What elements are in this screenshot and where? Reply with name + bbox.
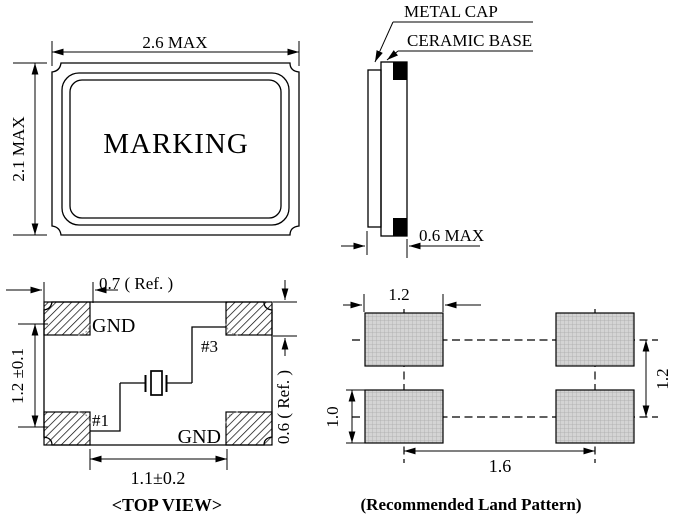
pin1-label: #1 bbox=[92, 411, 109, 430]
pad-width-dimension: 1.2 bbox=[343, 285, 481, 312]
front-view: 2.6 MAX 2.1 MAX MARKING bbox=[9, 33, 299, 235]
row-pitch-dim-label: 1.2 bbox=[653, 368, 672, 389]
pin3-label: #3 bbox=[201, 337, 218, 356]
side-view: METAL CAP CERAMIC BASE 0.6 MAX bbox=[341, 2, 533, 258]
horizontal-gap-dim-label: 1.1±0.2 bbox=[131, 468, 186, 488]
ceramic-base-label: CERAMIC BASE bbox=[407, 31, 532, 50]
land-pad-bottom-right bbox=[556, 390, 634, 443]
pad-height-dimension-land: 1.0 bbox=[323, 390, 367, 443]
horizontal-gap-dimension: 1.1±0.2 bbox=[90, 449, 227, 488]
thickness-dimension: 0.6 MAX bbox=[341, 226, 484, 258]
pad-gnd-top-left bbox=[44, 302, 90, 335]
front-height-dim-label: 2.1 MAX bbox=[9, 116, 28, 181]
gnd-label-bottom: GND bbox=[178, 426, 221, 448]
land-pad-top-right bbox=[556, 313, 634, 366]
ceramic-base-shape bbox=[381, 62, 407, 236]
marking-label: MARKING bbox=[103, 128, 249, 160]
column-pitch-dim-label: 1.6 bbox=[489, 456, 512, 476]
vertical-pitch-dimension: 1.2 ±0.1 bbox=[8, 324, 48, 427]
row-pitch-dimension: 1.2 bbox=[646, 340, 672, 417]
land-pad-top-left bbox=[365, 313, 443, 366]
crystal-element bbox=[151, 371, 162, 395]
gnd-label-top: GND bbox=[92, 315, 135, 337]
pad-width-dim-label: 1.2 bbox=[388, 285, 409, 304]
top-view: GND GND #3 #1 0.7 ( Ref. ) 1.2 ±0.1 0.6 … bbox=[6, 274, 297, 515]
front-width-dim-label: 2.6 MAX bbox=[142, 33, 207, 52]
column-pitch-dimension: 1.6 bbox=[404, 451, 595, 476]
top-view-title: <TOP VIEW> bbox=[112, 495, 222, 515]
pad-height-dim-label: 0.6 ( Ref. ) bbox=[274, 370, 293, 444]
land-pattern: 1.2 1.0 1.2 1.6 (Recommended Land Patter… bbox=[323, 285, 672, 514]
terminal-pad-top bbox=[393, 62, 407, 80]
front-height-dimension: 2.1 MAX bbox=[9, 63, 47, 235]
vertical-pitch-dim-label: 1.2 ±0.1 bbox=[8, 348, 27, 404]
ceramic-base-callout: CERAMIC BASE bbox=[387, 31, 533, 60]
land-pattern-title: (Recommended Land Pattern) bbox=[361, 495, 582, 514]
front-width-dimension: 2.6 MAX bbox=[52, 33, 299, 66]
land-pad-bottom-left bbox=[365, 390, 443, 443]
drawing-canvas: 2.6 MAX 2.1 MAX MARKING METAL CAP CERAMI… bbox=[0, 0, 678, 525]
metal-cap-label: METAL CAP bbox=[404, 2, 498, 21]
pad-height-dimension: 0.6 ( Ref. ) bbox=[273, 280, 297, 444]
thickness-dim-label: 0.6 MAX bbox=[419, 226, 484, 245]
corner-offset-dim-label: 0.7 ( Ref. ) bbox=[99, 274, 173, 293]
terminal-pad-bottom bbox=[393, 218, 407, 236]
package-drawing-svg: 2.6 MAX 2.1 MAX MARKING METAL CAP CERAMI… bbox=[0, 0, 678, 525]
leader-arrow bbox=[387, 51, 398, 60]
metal-cap-shape bbox=[368, 70, 381, 227]
pad-height-dim-label-land: 1.0 bbox=[323, 406, 342, 427]
corner-offset-dimension: 0.7 ( Ref. ) bbox=[6, 274, 173, 303]
leader-arrow bbox=[375, 22, 393, 62]
